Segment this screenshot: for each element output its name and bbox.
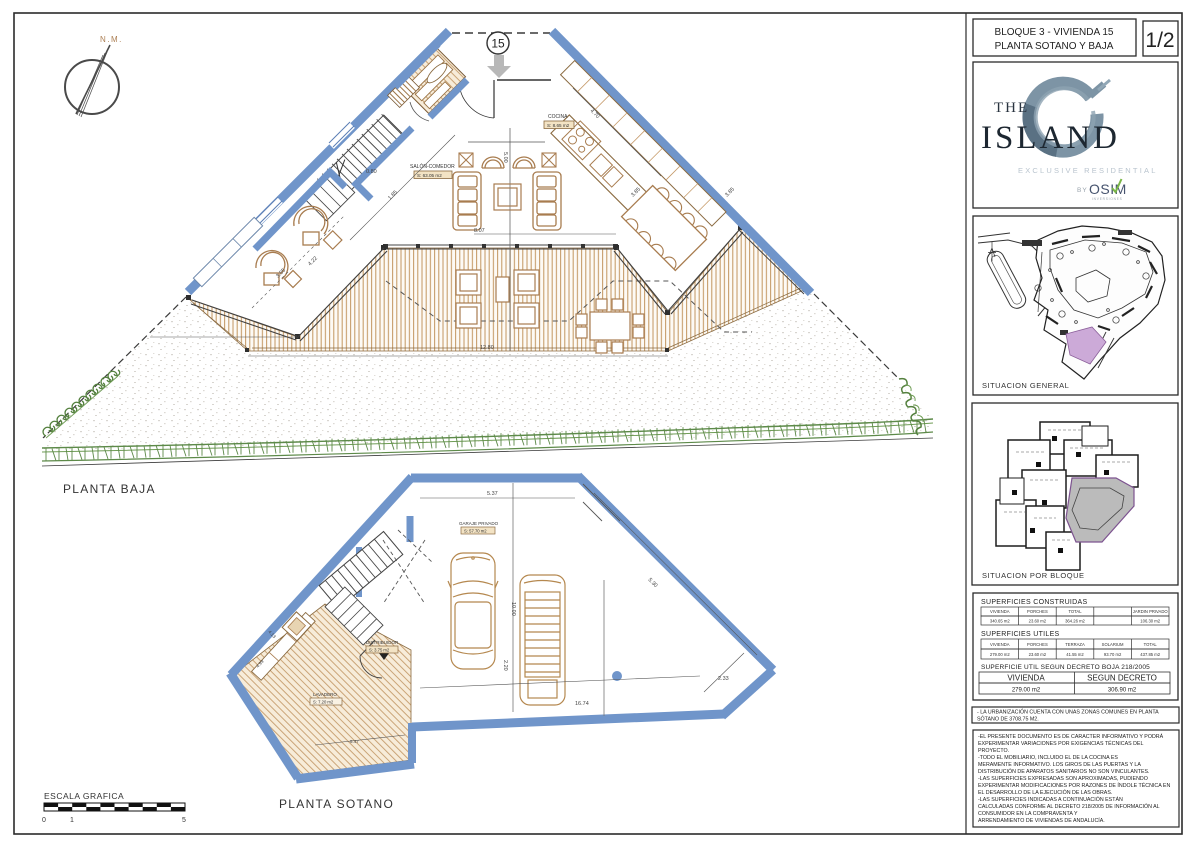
svg-text:279.00 m2: 279.00 m2 [990, 652, 1010, 657]
svg-text:279.00 m2: 279.00 m2 [1012, 688, 1041, 694]
svg-text:EXPERIMENTAR VARIACIONES POR E: EXPERIMENTAR VARIACIONES POR EXIGENCIAS … [978, 740, 1143, 747]
svg-text:23.60 m2: 23.60 m2 [1029, 652, 1047, 657]
svg-text:SOLARIUM: SOLARIUM [1102, 642, 1124, 647]
svg-text:15: 15 [491, 37, 505, 51]
svg-text:ESCALA GRAFICA: ESCALA GRAFICA [44, 791, 124, 801]
svg-text:340.65 m2: 340.65 m2 [990, 619, 1010, 624]
svg-text:S: 3.75 m2: S: 3.75 m2 [369, 648, 390, 653]
svg-text:SÓTANO DE 3708.75 M2.: SÓTANO DE 3708.75 M2. [977, 716, 1039, 723]
svg-text:OSIM: OSIM [1089, 181, 1127, 197]
svg-text:106.30 m2: 106.30 m2 [1140, 619, 1160, 624]
svg-text:5.00: 5.00 [502, 152, 508, 163]
svg-text:SITUACION GENERAL: SITUACION GENERAL [982, 381, 1069, 390]
svg-text:BY: BY [1077, 187, 1088, 194]
svg-text:SEGUN DECRETO: SEGUN DECRETO [1087, 674, 1157, 683]
svg-text:TOTAL: TOTAL [1144, 642, 1158, 647]
svg-text:306.90 m2: 306.90 m2 [1108, 688, 1137, 694]
svg-text:PROYECTO.: PROYECTO. [978, 748, 1009, 754]
svg-text:12.80: 12.80 [480, 345, 494, 351]
svg-text:23.60 m2: 23.60 m2 [1029, 619, 1047, 624]
svg-text:0: 0 [42, 817, 46, 824]
svg-text:EL DESARROLLO DE LA EJECUCIÓN: EL DESARROLLO DE LA EJECUCIÓN DE LAS OBR… [978, 789, 1112, 796]
svg-text:BLOQUE 3 - VIVIENDA 15: BLOQUE 3 - VIVIENDA 15 [995, 27, 1114, 38]
svg-text:10.00: 10.00 [510, 602, 516, 616]
svg-text:SITUACION POR BLOQUE: SITUACION POR BLOQUE [982, 571, 1085, 580]
svg-text:41.55 m2: 41.55 m2 [1066, 652, 1084, 657]
svg-text:1: 1 [70, 817, 74, 824]
svg-text:SUPERFICIES UTILES: SUPERFICIES UTILES [981, 631, 1060, 638]
svg-text:MERAMENTE INFORMATIVO. LOS GIR: MERAMENTE INFORMATIVO. LOS GIROS DE LAS … [978, 762, 1141, 768]
svg-text:8.07: 8.07 [474, 228, 485, 234]
svg-text:-EL PRESENTE DOCUMENTO ES DE C: -EL PRESENTE DOCUMENTO ES DE CARACTER IN… [978, 733, 1164, 740]
svg-text:LAVADERO: LAVADERO [313, 692, 337, 697]
svg-text:1/2: 1/2 [1145, 29, 1174, 52]
svg-text:2.20: 2.20 [502, 660, 508, 671]
svg-text:PLANTA BAJA: PLANTA BAJA [63, 482, 156, 496]
svg-text:TERRAZA: TERRAZA [1065, 642, 1085, 647]
svg-text:5: 5 [182, 817, 186, 824]
svg-text:INVERSIONES: INVERSIONES [1092, 197, 1123, 201]
svg-text:ARRENDAMIENTO DE VIVIENDAS DE: ARRENDAMIENTO DE VIVIENDAS DE ANDALUCÍA. [978, 817, 1105, 824]
svg-text:S: 63.05 m2: S: 63.05 m2 [417, 173, 442, 178]
svg-text:ISLAND: ISLAND [981, 120, 1120, 156]
svg-text:5.47: 5.47 [350, 739, 359, 744]
svg-text:S: 57.70 m2: S: 57.70 m2 [464, 529, 487, 534]
svg-text:S: 7.20 m2: S: 7.20 m2 [313, 700, 334, 705]
svg-text:JARDIN PRIVADO: JARDIN PRIVADO [1133, 609, 1169, 614]
svg-text:S: 8.65 m2: S: 8.65 m2 [547, 123, 570, 128]
svg-text:SALÓN-COMEDOR: SALÓN-COMEDOR [410, 163, 455, 170]
svg-text:EXPERIMENTAR MODIFICACIONES PO: EXPERIMENTAR MODIFICACIONES POR RAZONES … [978, 782, 1170, 789]
svg-text:-LAS SUPERFICIES INDICADAS A C: -LAS SUPERFICIES INDICADAS A CONTINUACIÓ… [978, 796, 1123, 803]
svg-text:-TODO EL MOBILIARIO, INCLUIDO: -TODO EL MOBILIARIO, INCLUIDO EL DE LA C… [978, 755, 1118, 761]
svg-text:VIVIENDA: VIVIENDA [1007, 674, 1045, 683]
svg-text:DISTRIBUCIÓN DE APARATOS SANIT: DISTRIBUCIÓN DE APARATOS SANITARIOS NO S… [978, 768, 1150, 775]
svg-text:PORCHES: PORCHES [1027, 642, 1048, 647]
svg-text:VIVIENDA: VIVIENDA [990, 609, 1010, 614]
svg-text:PLANTA SOTANO: PLANTA SOTANO [279, 797, 394, 811]
svg-text:2.33: 2.33 [718, 676, 729, 682]
svg-text:VIVIENDA: VIVIENDA [990, 642, 1010, 647]
svg-text:DISTRIBUIDOR: DISTRIBUIDOR [366, 640, 399, 645]
svg-text:GARAJE PRIVADO: GARAJE PRIVADO [459, 521, 499, 526]
svg-text:364.26 m2: 364.26 m2 [1065, 619, 1085, 624]
svg-text:93.70 m2: 93.70 m2 [1104, 652, 1122, 657]
svg-text:0.80: 0.80 [366, 169, 377, 175]
svg-text:PORCHES: PORCHES [1027, 609, 1048, 614]
svg-text:N.M.: N.M. [100, 35, 123, 44]
svg-text:CALCULADAS CONFORME AL DECRETO: CALCULADAS CONFORME AL DECRETO 218/2005 … [978, 803, 1160, 810]
svg-text:5.37: 5.37 [487, 491, 498, 497]
svg-text:CONSUMIDOR EN LA COMPRAVENTA: CONSUMIDOR EN LA COMPRAVENTA Y [978, 811, 1078, 817]
svg-text:PLANTA SOTANO Y BAJA: PLANTA SOTANO Y BAJA [995, 41, 1114, 52]
svg-text:THE: THE [994, 100, 1029, 116]
svg-text:COCINA: COCINA [548, 114, 568, 120]
svg-text:SUPERFICIE UTIL SEGUN DECRETO: SUPERFICIE UTIL SEGUN DECRETO BOJA 218/2… [981, 664, 1150, 671]
svg-text:437.85 m2: 437.85 m2 [1140, 652, 1160, 657]
svg-text:-LAS SUPERFICIES EXPRESADAS SO: -LAS SUPERFICIES EXPRESADAS SON APROXIMA… [978, 776, 1148, 782]
svg-text:TOTAL: TOTAL [1068, 609, 1082, 614]
svg-text:EXCLUSIVE RESIDENTIAL: EXCLUSIVE RESIDENTIAL [1018, 166, 1158, 175]
svg-text:- LA URBANIZACIÓN CUENTA CON U: - LA URBANIZACIÓN CUENTA CON UNAS ZONAS … [977, 709, 1159, 716]
svg-text:16.74: 16.74 [575, 701, 589, 707]
svg-text:SUPERFICIES CONSTRUIDAS: SUPERFICIES CONSTRUIDAS [981, 599, 1087, 606]
